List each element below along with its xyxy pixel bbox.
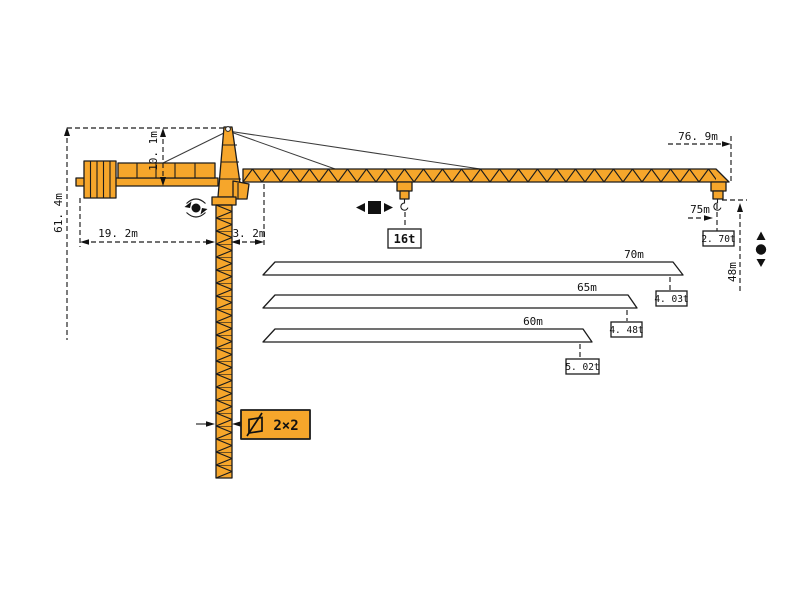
- jib-tie-inner: [228, 131, 338, 170]
- dim-counter-jib-label: 19. 2m: [98, 227, 138, 240]
- dim-total-height-label: 61. 4m: [52, 193, 65, 233]
- counterweight-block: [84, 161, 116, 198]
- capacity-tip-label: 2. 70t: [701, 234, 735, 245]
- jib-option-70m-length: 70m: [624, 248, 644, 261]
- counter-jib-tie: [163, 131, 228, 163]
- operator-cab: [233, 181, 249, 199]
- hook-block-tip: [713, 191, 723, 199]
- crane-spec-diagram: 61. 4m 10. 1m 19. 2m 3. 2m 76. 9m 75m: [0, 0, 800, 600]
- dim-arrow-right: [704, 215, 713, 220]
- callout-arrow-right: [232, 421, 241, 426]
- mast-section-label: 2×2: [273, 418, 298, 434]
- dim-hook-height-label: 48m: [726, 262, 739, 282]
- counter-jib-platform: [118, 163, 215, 178]
- capacity-max: 16t: [388, 212, 421, 248]
- trolley-travel-icon: [356, 201, 393, 214]
- dim-arrow-up: [737, 203, 743, 212]
- apex-pulley: [226, 127, 231, 132]
- jib-tie-outer: [228, 131, 487, 170]
- hook-mid: [401, 199, 408, 210]
- hoist-arrow-down: [757, 259, 766, 267]
- dim-max-radius-label: 75m: [690, 203, 710, 216]
- trolley-square: [368, 201, 381, 214]
- rotation-arc-bottom: [187, 213, 206, 218]
- hoist-arrow-up: [757, 232, 766, 241]
- mast-section-callout: 2×2: [196, 410, 310, 439]
- dim-rear-offset-label: 3. 2m: [232, 227, 265, 240]
- callout-arrow-left: [206, 421, 215, 426]
- jib-option-60m: 60m 5. 02t: [263, 315, 600, 374]
- trolley-tip: [711, 182, 726, 191]
- dim-arrow-right: [206, 239, 215, 244]
- rotation-icon: [185, 199, 208, 217]
- jib-option-70m-bar: [263, 262, 683, 275]
- trolley-arrow-right: [384, 203, 393, 212]
- capacity-max-label: 16t: [394, 232, 416, 246]
- trolley-hook-tip: [711, 182, 726, 210]
- crane-diagram-page: 61. 4m 10. 1m 19. 2m 3. 2m 76. 9m 75m: [0, 0, 800, 600]
- jib-option-70m-capacity: 4. 03t: [654, 294, 688, 305]
- dim-head-height-label: 10. 1m: [147, 131, 160, 171]
- jib-lattice: [243, 169, 716, 182]
- hoist-dot: [756, 244, 766, 254]
- hoist-up-down-icon: [756, 232, 766, 268]
- trolley-hook-mid: [397, 182, 412, 210]
- jib-option-60m-capacity: 5. 02t: [565, 362, 599, 373]
- jib-option-65m-length: 65m: [577, 281, 597, 294]
- jib: [243, 169, 729, 182]
- dim-max-radius: 75m: [688, 203, 713, 221]
- rotation-arc-top: [187, 199, 206, 204]
- dim-jib-overall-label: 76. 9m: [678, 130, 718, 143]
- dim-arrow-up: [160, 128, 166, 137]
- tower-mast: [216, 205, 232, 478]
- dim-arrow-right: [255, 239, 264, 244]
- dim-arrow-right: [722, 141, 731, 146]
- jib-option-60m-length: 60m: [523, 315, 543, 328]
- rotation-dot: [192, 204, 201, 213]
- jib-option-65m-capacity: 4. 48t: [609, 325, 643, 336]
- jib-option-60m-bar: [263, 329, 592, 342]
- trolley-mid: [397, 182, 412, 191]
- jib-option-65m-bar: [263, 295, 637, 308]
- dim-arrow-left: [80, 239, 89, 244]
- dim-total-height: 61. 4m: [52, 127, 226, 340]
- hook-block-mid: [400, 191, 409, 199]
- mast-lattice: [216, 205, 232, 478]
- trolley-arrow-left: [356, 203, 365, 212]
- turntable-collar: [212, 197, 236, 205]
